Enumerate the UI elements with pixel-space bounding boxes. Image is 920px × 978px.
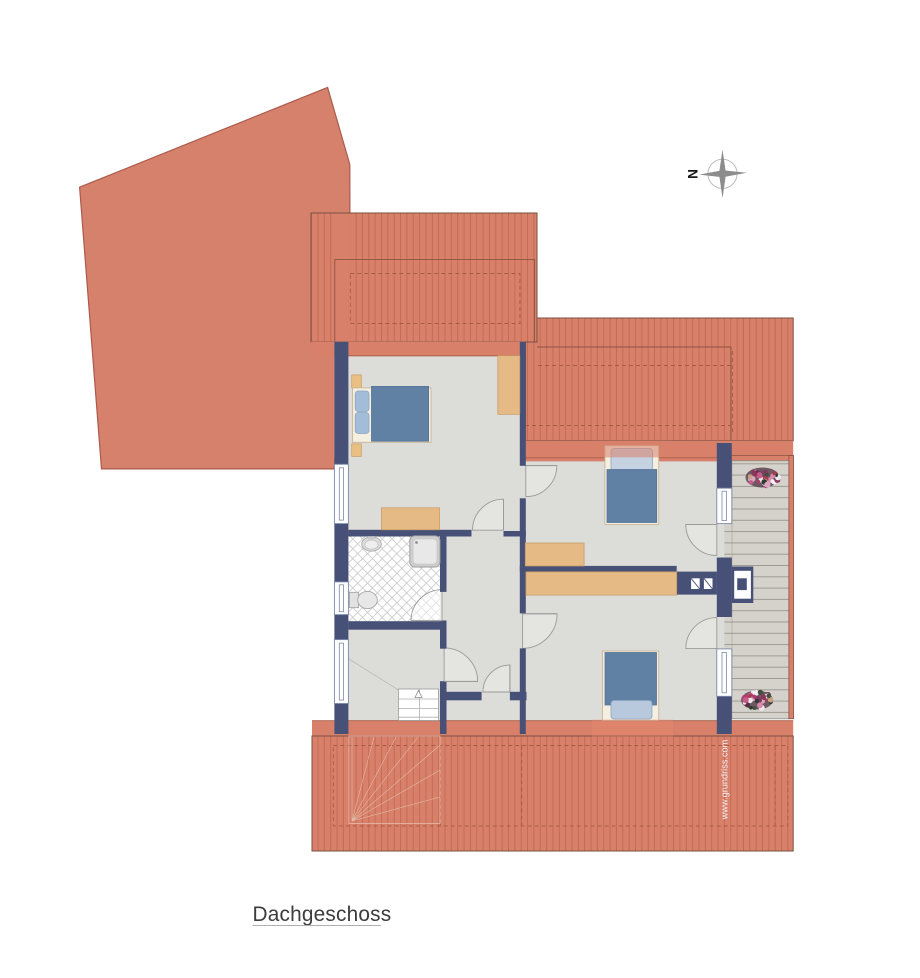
svg-text:www.grundriss.com: www.grundriss.com <box>720 739 730 820</box>
svg-text:N: N <box>685 169 700 179</box>
svg-text:Dachgeschoss: Dachgeschoss <box>253 903 392 926</box>
